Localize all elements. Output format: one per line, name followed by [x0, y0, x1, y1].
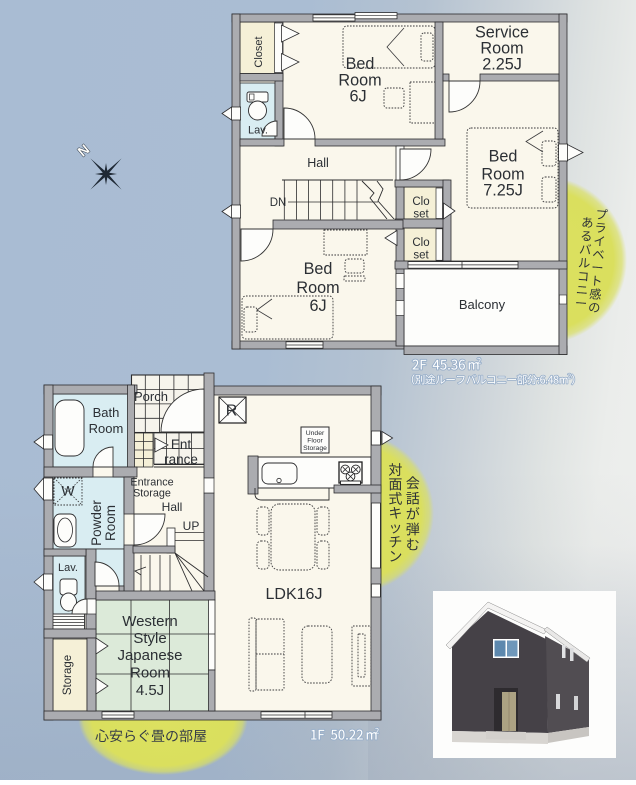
svg-text:LDK16J: LDK16J — [266, 586, 323, 603]
svg-text:6J: 6J — [309, 297, 326, 315]
svg-text:Porch: Porch — [134, 389, 168, 404]
svg-text:Storage: Storage — [133, 488, 171, 500]
svg-text:Floor: Floor — [307, 438, 323, 445]
svg-text:N: N — [74, 141, 92, 160]
svg-text:Bath: Bath — [93, 405, 120, 420]
svg-text:4.5J: 4.5J — [136, 682, 164, 699]
svg-text:7.25J: 7.25J — [483, 182, 523, 200]
svg-text:Lav.: Lav. — [58, 562, 78, 574]
svg-text:Style: Style — [133, 630, 166, 647]
svg-text:Lav.: Lav. — [248, 125, 268, 137]
svg-text:W: W — [61, 483, 75, 499]
svg-text:2.25J: 2.25J — [482, 56, 522, 74]
svg-text:UP: UP — [183, 519, 200, 533]
svg-text:Room: Room — [296, 279, 339, 297]
svg-text:Powder: Powder — [89, 500, 104, 546]
svg-text:set: set — [413, 250, 429, 262]
svg-text:Japanese: Japanese — [117, 647, 182, 664]
svg-text:Storage: Storage — [303, 445, 327, 452]
svg-text:Hall: Hall — [162, 500, 183, 514]
svg-text:Ent: Ent — [171, 437, 192, 452]
svg-text:Bed: Bed — [304, 260, 333, 278]
svg-text:Western: Western — [122, 613, 178, 630]
svg-text:Bed: Bed — [489, 148, 518, 166]
svg-text:Room: Room — [89, 421, 124, 436]
svg-text:set: set — [413, 209, 429, 221]
svg-text:Room: Room — [103, 505, 118, 541]
svg-text:Balcony: Balcony — [459, 297, 506, 312]
svg-text:Bed: Bed — [346, 55, 375, 73]
svg-text:Closet: Closet — [253, 36, 265, 67]
svg-text:DN: DN — [270, 197, 287, 209]
svg-text:Room: Room — [130, 665, 170, 682]
svg-text:R: R — [226, 403, 238, 420]
svg-text:Storage: Storage — [62, 655, 74, 695]
svg-text:Clo: Clo — [412, 196, 429, 208]
svg-text:Under: Under — [306, 430, 325, 437]
svg-text:Hall: Hall — [307, 156, 329, 170]
svg-text:rance: rance — [164, 452, 198, 467]
svg-text:6J: 6J — [349, 88, 366, 106]
svg-text:Clo: Clo — [412, 237, 429, 249]
